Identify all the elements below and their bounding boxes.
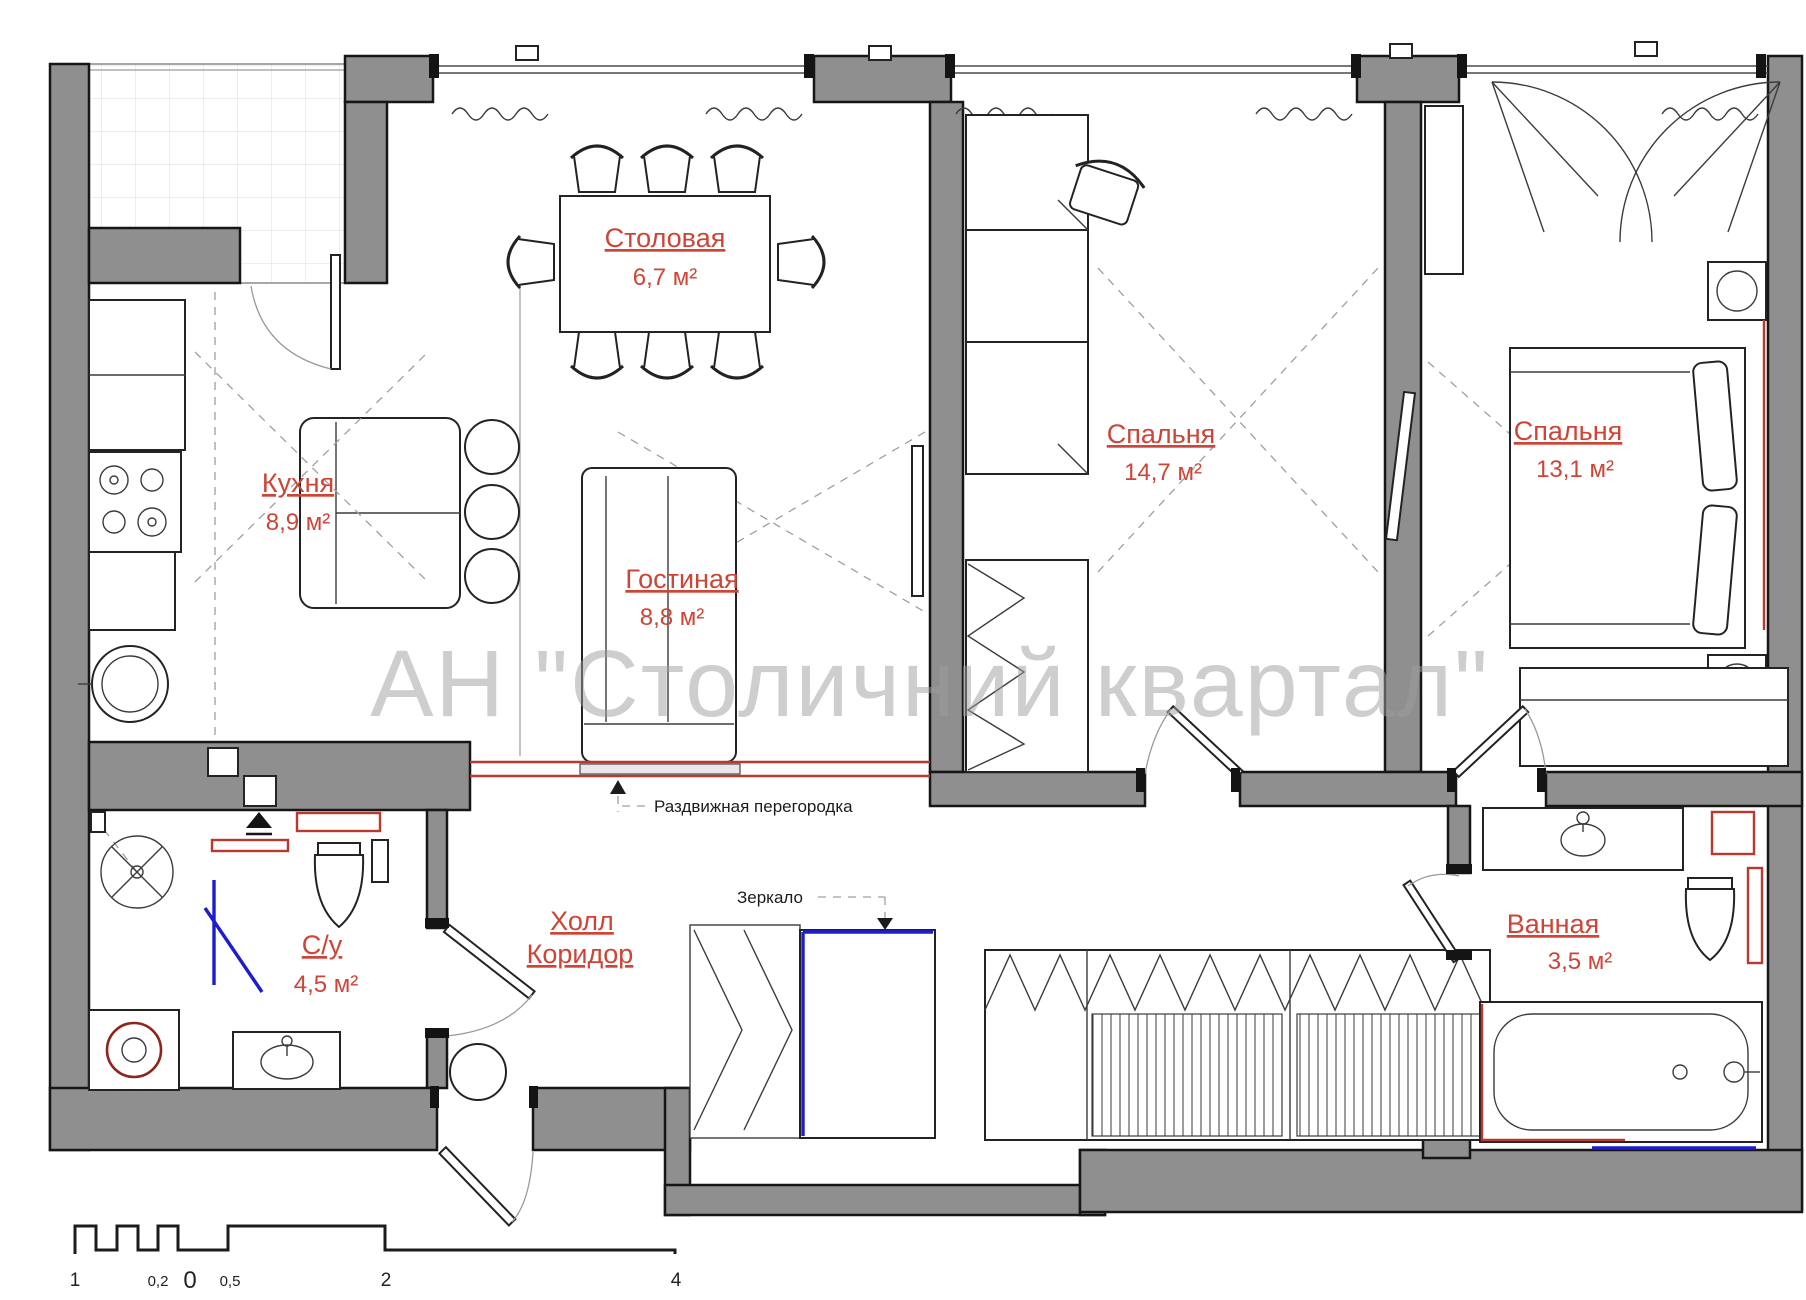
pouf-icon xyxy=(450,1044,506,1100)
bathroom-door xyxy=(1404,864,1472,962)
window-frame-tick xyxy=(1756,54,1766,78)
floor-plan-drawing: Кухня 8,9 м² Столовая 6,7 м² Гостиная 8,… xyxy=(0,0,1806,1300)
curtain-fan xyxy=(1492,82,1652,242)
window-frame-tick xyxy=(1351,54,1361,78)
mirror-closet xyxy=(800,930,935,1138)
wc-door xyxy=(444,925,535,1036)
curtain-squiggle xyxy=(1662,108,1758,120)
curtain-squiggle xyxy=(706,108,802,120)
pouf-icon xyxy=(465,420,519,474)
wardrobe-box xyxy=(966,115,1088,230)
wall-left-outer xyxy=(50,64,89,1150)
tv-panel xyxy=(912,446,923,596)
dining-room: Столовая 6,7 м² xyxy=(508,146,824,378)
partition-track xyxy=(580,764,740,774)
chair-icon xyxy=(641,146,693,192)
bedroom1-area: 14,7 м² xyxy=(1124,459,1202,486)
kitchen-area: 8,9 м² xyxy=(266,509,331,536)
wall-balcony-divider xyxy=(89,228,240,283)
wardrobe-box xyxy=(966,230,1088,342)
wall-wc-right-lower xyxy=(427,1030,447,1088)
mirror-arrow xyxy=(877,918,893,930)
wall-top-a-vertical xyxy=(345,102,387,283)
wardrobe-box xyxy=(966,342,1088,474)
wc-sink-icon xyxy=(233,1032,340,1089)
window-mullion-mark xyxy=(1635,42,1657,56)
hall-label-line2: Коридор xyxy=(527,939,634,969)
bedroom2-label: Спальня xyxy=(1514,416,1623,446)
bedroom2-area: 13,1 м² xyxy=(1536,456,1614,483)
shower-icon xyxy=(91,812,173,908)
curtain-squiggle xyxy=(452,108,548,120)
window-frame-tick xyxy=(804,54,814,78)
dining-label: Столовая xyxy=(605,223,726,253)
dining-area: 6,7 м² xyxy=(633,264,698,291)
window-frame-tick xyxy=(1457,54,1467,78)
chair-icon xyxy=(571,146,623,192)
bath-sink-icon xyxy=(1483,808,1683,870)
kitchen-sink-icon xyxy=(78,646,168,722)
scale-label-1: 1 xyxy=(70,1270,81,1291)
wall-corridor-top-2 xyxy=(1240,772,1456,806)
vent-box xyxy=(208,748,238,776)
flush-button xyxy=(372,840,388,882)
hanging-clothes xyxy=(1092,1014,1282,1136)
bathtub-icon xyxy=(1480,1002,1762,1142)
wall-bottom-left xyxy=(50,1088,437,1150)
window-mullion-mark xyxy=(516,46,538,60)
pouf-icon xyxy=(465,485,519,539)
vent-arrow-icon xyxy=(246,812,272,834)
wall-right-outer xyxy=(1768,56,1802,1210)
scale-label-05: 0,5 xyxy=(220,1273,241,1290)
bedroom2-wardrobe xyxy=(1425,106,1463,274)
scale-label-0: 0 xyxy=(183,1267,196,1294)
scale-label-02: 0,2 xyxy=(148,1273,169,1290)
watermark: АН "Столичний квартал" xyxy=(370,631,1490,737)
wall-wc-top xyxy=(89,742,470,810)
towel-rail-red xyxy=(212,840,288,851)
window-mullion-mark xyxy=(869,46,891,60)
hall-label-line1: Холл xyxy=(550,906,614,936)
wc-label: С/у xyxy=(302,930,343,960)
bed xyxy=(1510,348,1745,648)
living-area: 8,8 м² xyxy=(640,604,705,631)
wall-top-a-cap xyxy=(345,56,433,102)
window-mullion-mark xyxy=(1390,44,1412,58)
window-frame-tick xyxy=(429,54,439,78)
windows xyxy=(429,42,1768,120)
floor-plan-page: Кухня 8,9 м² Столовая 6,7 м² Гостиная 8,… xyxy=(0,0,1806,1300)
toilet-icon xyxy=(1686,878,1734,960)
chair-icon xyxy=(571,332,623,378)
living-label: Гостиная xyxy=(625,564,738,594)
folding-doors xyxy=(690,925,800,1138)
wall-top-b xyxy=(814,56,951,102)
dresser xyxy=(1520,668,1788,766)
chair-icon xyxy=(508,236,554,288)
sliding-partition: Раздвижная перегородка xyxy=(470,762,930,816)
towel-rail-red xyxy=(1748,868,1762,963)
entrance-door xyxy=(430,1086,538,1225)
wc-area: 4,5 м² xyxy=(294,971,359,998)
nightstand-icon xyxy=(1708,262,1766,320)
wall-bath-left-upper xyxy=(1448,806,1470,873)
boiler-red xyxy=(1712,812,1754,854)
kitchen-label: Кухня xyxy=(262,468,334,498)
pouf-icon xyxy=(465,549,519,603)
chair-icon xyxy=(711,332,763,378)
bathroom-label: Ванная xyxy=(1507,909,1599,939)
chair-icon xyxy=(778,236,824,288)
hanging-clothes xyxy=(1297,1014,1485,1136)
kitchen-counter xyxy=(89,552,175,630)
curtain-squiggle xyxy=(1256,108,1352,120)
washing-machine-icon xyxy=(89,1010,179,1090)
bedroom1-label: Спальня xyxy=(1107,419,1216,449)
wall-corridor-top-1 xyxy=(930,772,1145,806)
towel-rail-red xyxy=(297,813,380,831)
stove-icon xyxy=(89,452,181,552)
wall-corridor-top-3 xyxy=(1546,772,1802,806)
wall-bottom-right xyxy=(1080,1150,1802,1212)
toilet-icon xyxy=(315,840,388,927)
wall-bottom-vestibule xyxy=(665,1185,1105,1215)
scale-bar-line xyxy=(75,1226,675,1254)
mirror-note: Зеркало xyxy=(737,888,803,907)
wall-wc-right-upper xyxy=(427,810,447,928)
partition-note: Раздвижная перегородка xyxy=(654,797,853,816)
bathroom-area: 3,5 м² xyxy=(1548,948,1613,975)
scale-bar: 1 0,2 0 0,5 2 4 xyxy=(70,1226,682,1294)
partition-arrow xyxy=(610,780,626,794)
wardrobe-row xyxy=(985,950,1490,1140)
window-frame-tick xyxy=(945,54,955,78)
scale-label-2: 2 xyxy=(381,1270,392,1291)
chair-icon xyxy=(711,146,763,192)
chair-icon xyxy=(641,332,693,378)
wall-top-c xyxy=(1357,56,1459,102)
vent-box xyxy=(244,776,276,806)
scale-label-4: 4 xyxy=(671,1270,682,1291)
curtain-fan xyxy=(1620,82,1780,242)
mirror-annotation: Зеркало xyxy=(737,888,893,930)
